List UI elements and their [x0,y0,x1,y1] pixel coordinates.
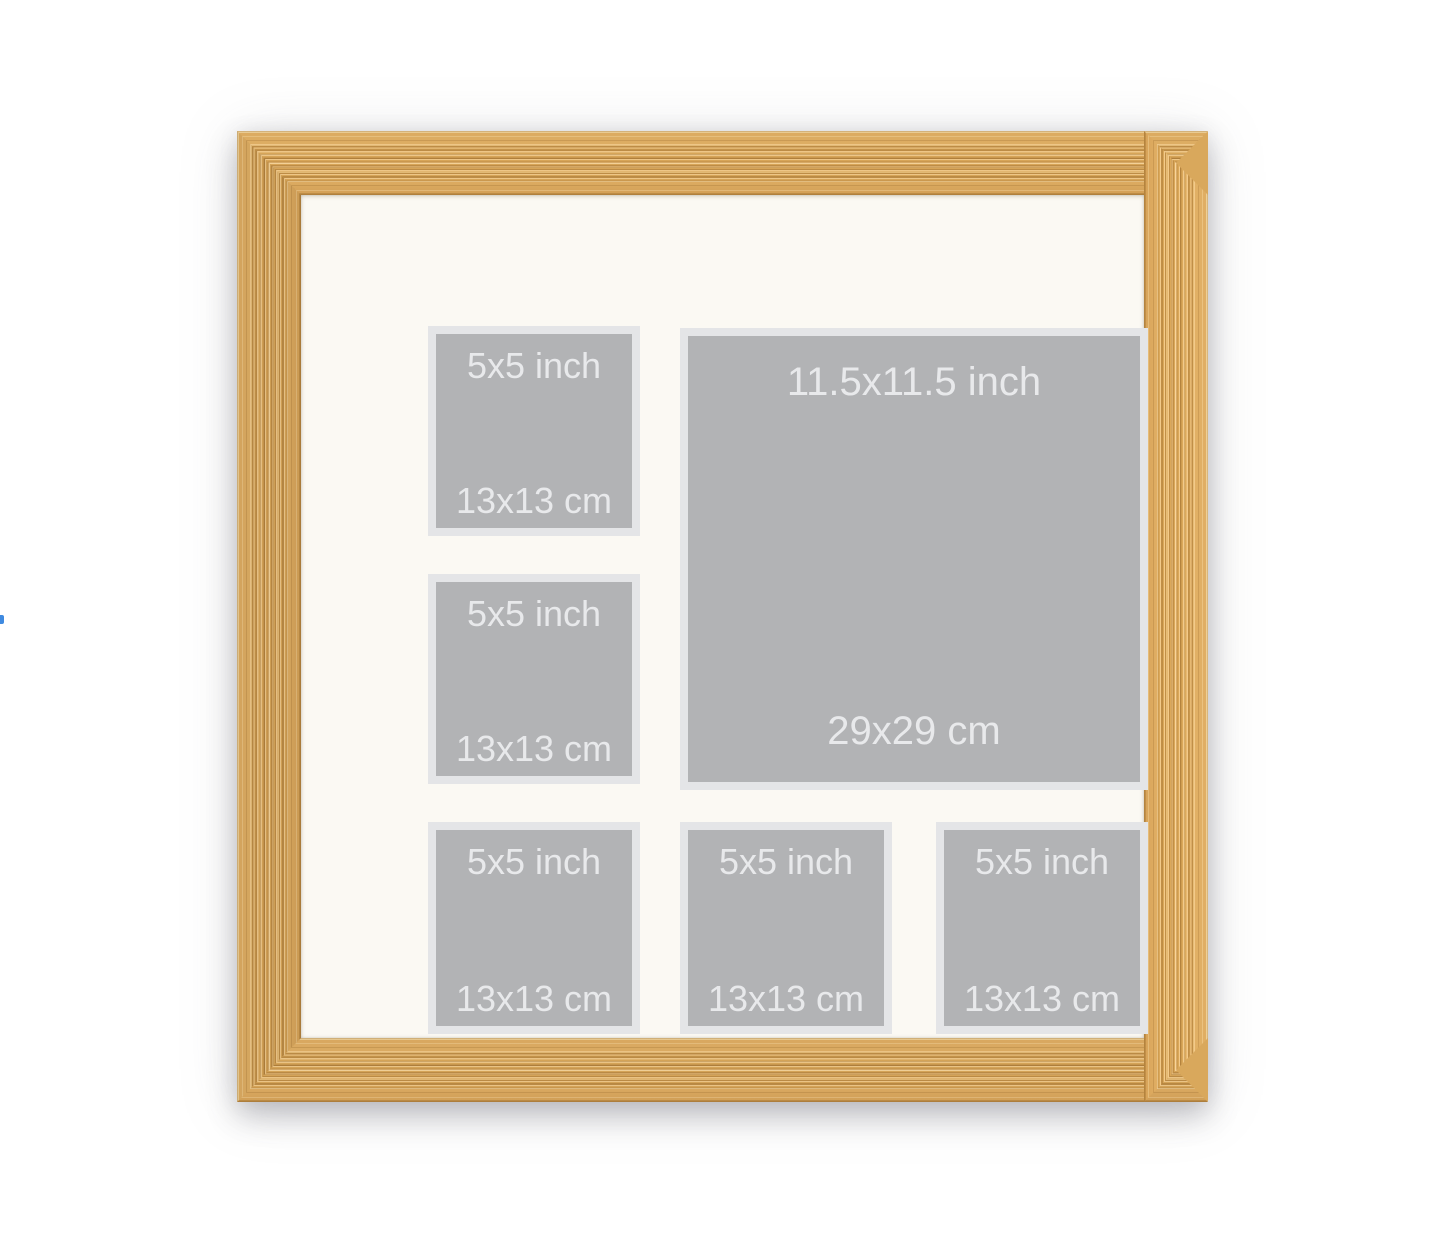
aperture-small-top-left: 5x5 inch 13x13 cm [428,326,640,536]
size-label-inch: 5x5 inch [436,593,632,635]
product-image-multi-aperture-frame: 5x5 inch 13x13 cm 5x5 inch 13x13 cm 11.5… [0,0,1445,1236]
size-label-inch: 5x5 inch [944,841,1140,883]
size-label-cm: 13x13 cm [436,728,632,770]
size-label-cm: 29x29 cm [688,709,1140,754]
edge-cursor-artifact [0,615,4,624]
photo-placeholder: 5x5 inch 13x13 cm [436,582,632,776]
size-label-inch: 11.5x11.5 inch [688,360,1140,405]
photo-placeholder: 5x5 inch 13x13 cm [688,830,884,1026]
frame-rail-top [237,131,1208,195]
size-label-cm: 13x13 cm [688,978,884,1020]
aperture-small-bottom-right: 5x5 inch 13x13 cm [936,822,1148,1034]
aperture-small-middle-left: 5x5 inch 13x13 cm [428,574,640,784]
picture-frame: 5x5 inch 13x13 cm 5x5 inch 13x13 cm 11.5… [237,131,1208,1102]
photo-placeholder: 11.5x11.5 inch 29x29 cm [688,336,1140,782]
aperture-large: 11.5x11.5 inch 29x29 cm [680,328,1148,790]
size-label-inch: 5x5 inch [688,841,884,883]
photo-placeholder: 5x5 inch 13x13 cm [944,830,1140,1026]
size-label-inch: 5x5 inch [436,841,632,883]
size-label-inch: 5x5 inch [436,345,632,387]
photo-placeholder: 5x5 inch 13x13 cm [436,334,632,528]
aperture-small-bottom-middle: 5x5 inch 13x13 cm [680,822,892,1034]
frame-rail-left [237,131,301,1102]
frame-rail-bottom [237,1038,1208,1102]
size-label-cm: 13x13 cm [436,480,632,522]
photo-placeholder: 5x5 inch 13x13 cm [436,830,632,1026]
size-label-cm: 13x13 cm [436,978,632,1020]
size-label-cm: 13x13 cm [944,978,1140,1020]
frame-rail-right [1144,131,1208,1102]
aperture-small-bottom-left: 5x5 inch 13x13 cm [428,822,640,1034]
mat-board: 5x5 inch 13x13 cm 5x5 inch 13x13 cm 11.5… [301,195,1144,1038]
